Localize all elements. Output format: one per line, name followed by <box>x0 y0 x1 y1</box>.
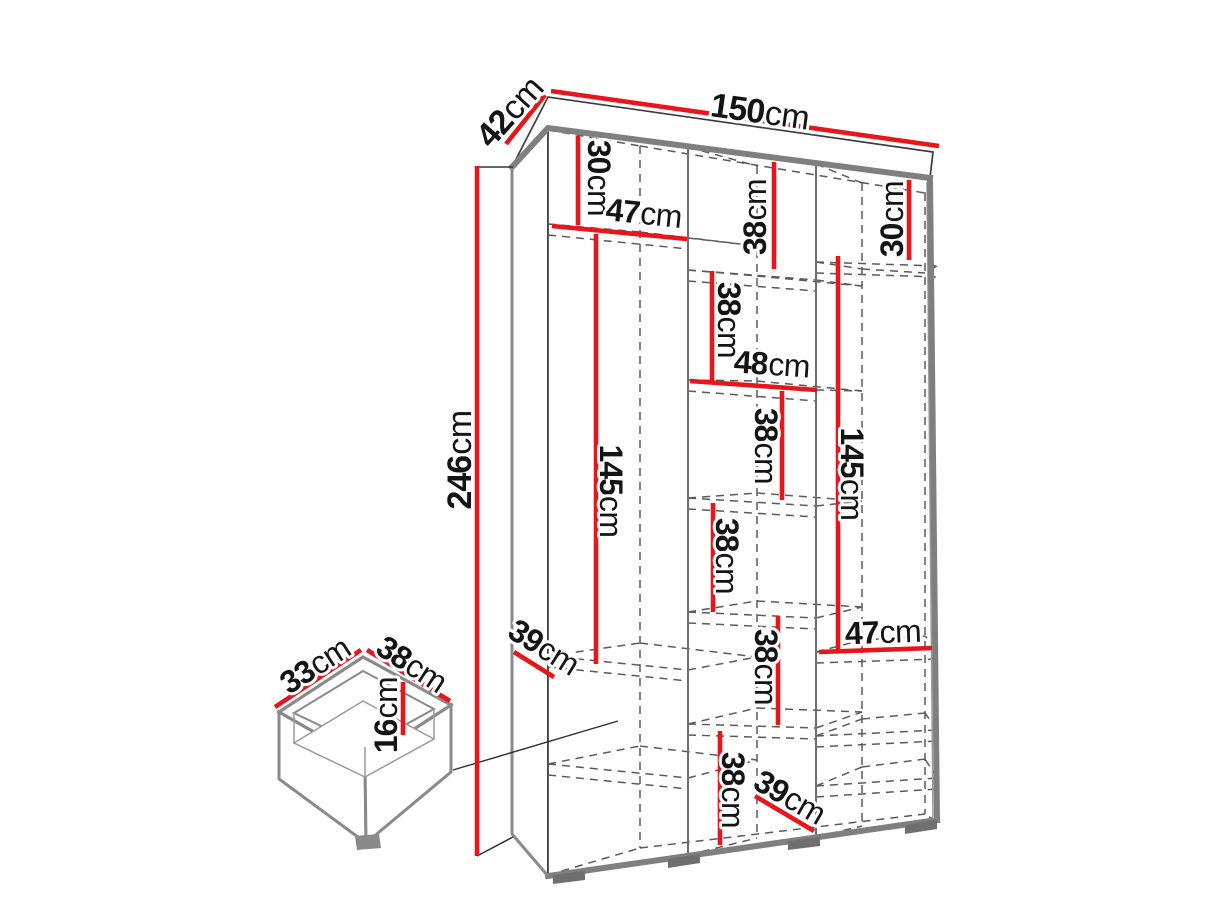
dim-label-right-shelf-width: 47cm <box>844 613 921 652</box>
wardrobe-dimension-diagram: 150cm 42cm 246cm 30cm 47cm 38cm 30cm 38c… <box>0 0 1214 911</box>
dim-label-middle-top-section: 38cm <box>737 179 773 255</box>
wardrobe-left-face <box>512 128 548 876</box>
dim-label-middle-section-5: 38cm <box>748 629 784 705</box>
dim-label-left-hanging-section: 145cm <box>593 444 629 537</box>
dim-label-middle-section-3: 38cm <box>748 408 784 484</box>
dim-label-middle-bottom-section: 38cm <box>715 752 751 828</box>
dim-label-middle-section-4: 38cm <box>709 518 745 594</box>
dim-label-right-hanging-section: 145cm <box>834 427 870 520</box>
dim-label-drawer-height: 16cm <box>368 677 404 753</box>
dim-label-right-top-section: 30cm <box>874 181 910 257</box>
diagram-canvas: 150cm 42cm 246cm 30cm 47cm 38cm 30cm 38c… <box>0 0 1214 911</box>
drawer-foot <box>355 834 381 850</box>
extension-tick-bottom <box>477 837 513 856</box>
dim-label-middle-shelf-width: 48cm <box>733 343 812 384</box>
dim-label-height-left: 246cm <box>441 410 479 509</box>
